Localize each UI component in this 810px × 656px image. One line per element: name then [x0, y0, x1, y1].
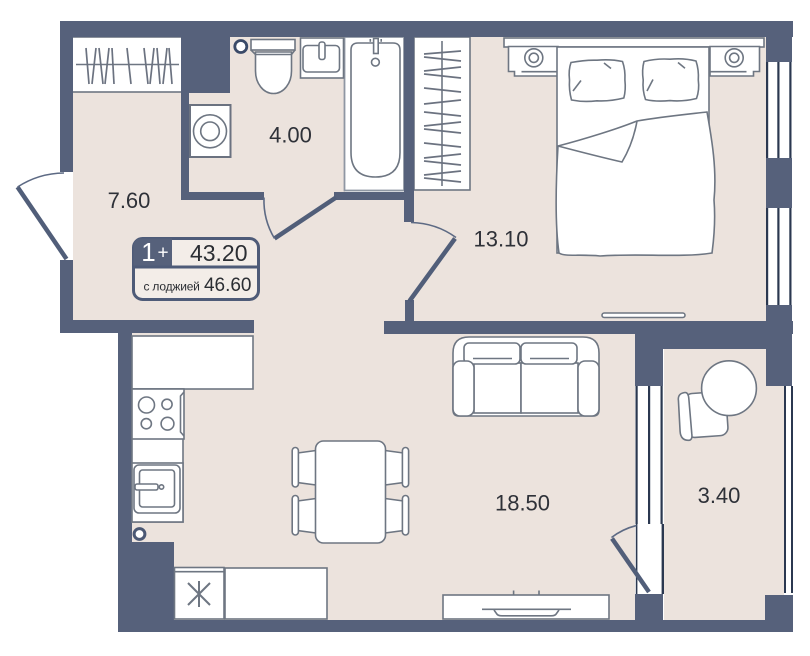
svg-text:18.50: 18.50 — [495, 491, 550, 516]
svg-text:1: 1 — [141, 237, 155, 267]
svg-text:7.60: 7.60 — [108, 188, 151, 213]
svg-text:+: + — [157, 243, 168, 264]
svg-text:46.60: 46.60 — [204, 275, 252, 296]
svg-text:4.00: 4.00 — [269, 123, 312, 148]
svg-text:13.10: 13.10 — [473, 227, 528, 252]
svg-text:с лоджией: с лоджией — [144, 280, 200, 294]
svg-text:3.40: 3.40 — [698, 483, 741, 508]
svg-text:43.20: 43.20 — [190, 240, 248, 266]
